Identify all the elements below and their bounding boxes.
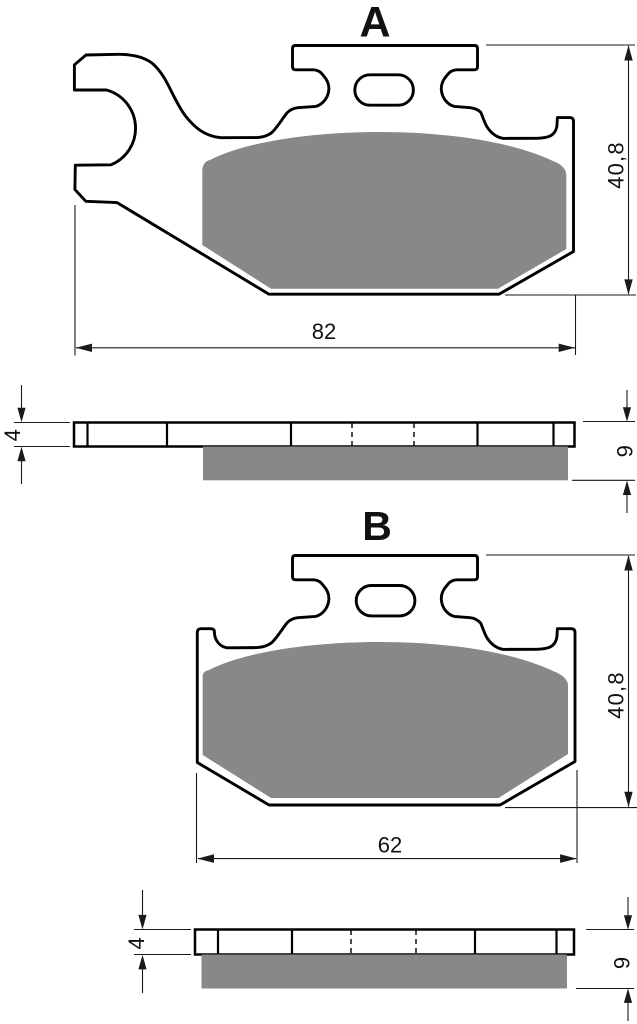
svg-text:A: A bbox=[359, 0, 390, 46]
svg-text:4: 4 bbox=[0, 429, 25, 441]
svg-text:9: 9 bbox=[613, 445, 637, 457]
svg-text:40,8: 40,8 bbox=[604, 671, 629, 719]
svg-text:4: 4 bbox=[124, 937, 149, 949]
svg-text:B: B bbox=[362, 503, 392, 549]
svg-text:9: 9 bbox=[610, 957, 635, 969]
svg-text:62: 62 bbox=[378, 832, 402, 857]
svg-text:40,8: 40,8 bbox=[604, 141, 629, 189]
svg-text:82: 82 bbox=[312, 319, 336, 344]
